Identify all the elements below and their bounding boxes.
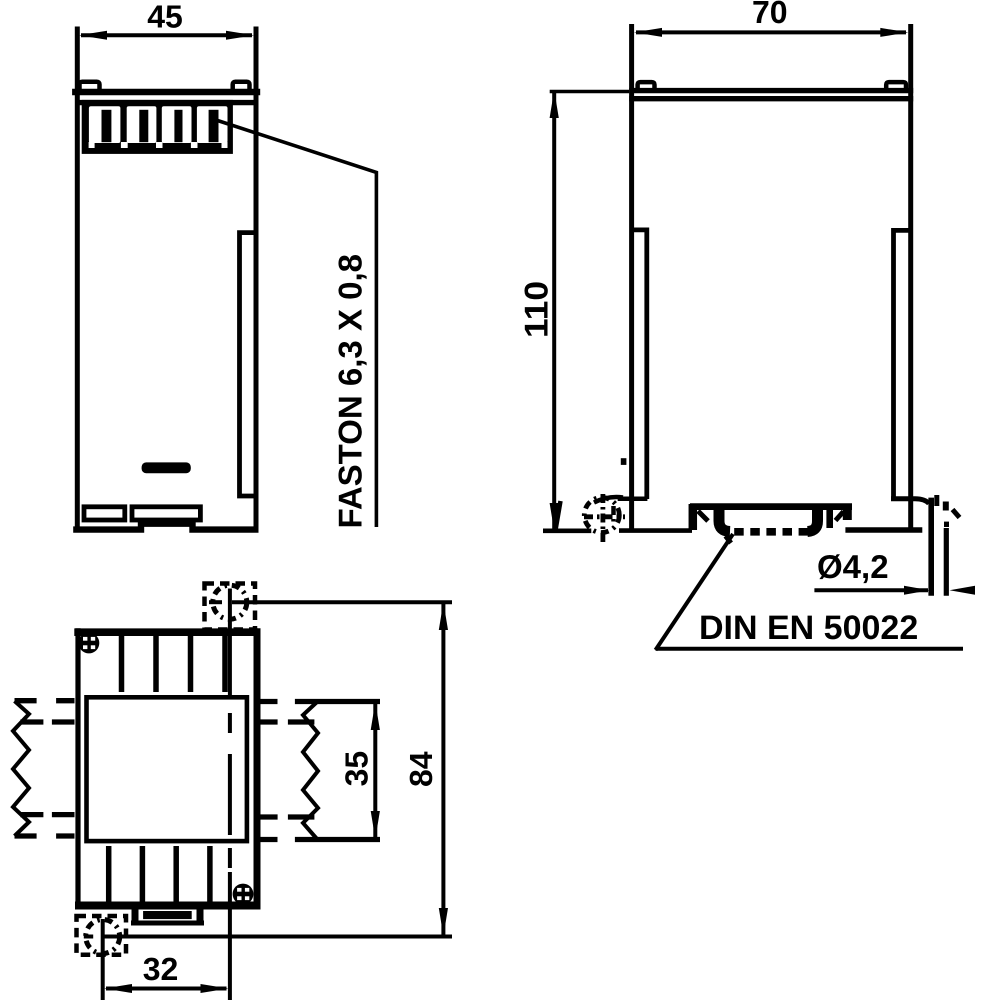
svg-text:35: 35: [339, 751, 375, 787]
svg-text:45: 45: [147, 0, 183, 35]
svg-text:FASTON 6,3 X 0,8: FASTON 6,3 X 0,8: [332, 254, 369, 529]
svg-text:DIN EN 50022: DIN EN 50022: [699, 609, 918, 647]
svg-text:32: 32: [143, 951, 179, 987]
svg-text:70: 70: [752, 0, 788, 30]
svg-text:84: 84: [403, 751, 439, 787]
svg-text:110: 110: [517, 281, 554, 338]
svg-text:Ø4,2: Ø4,2: [817, 548, 889, 585]
